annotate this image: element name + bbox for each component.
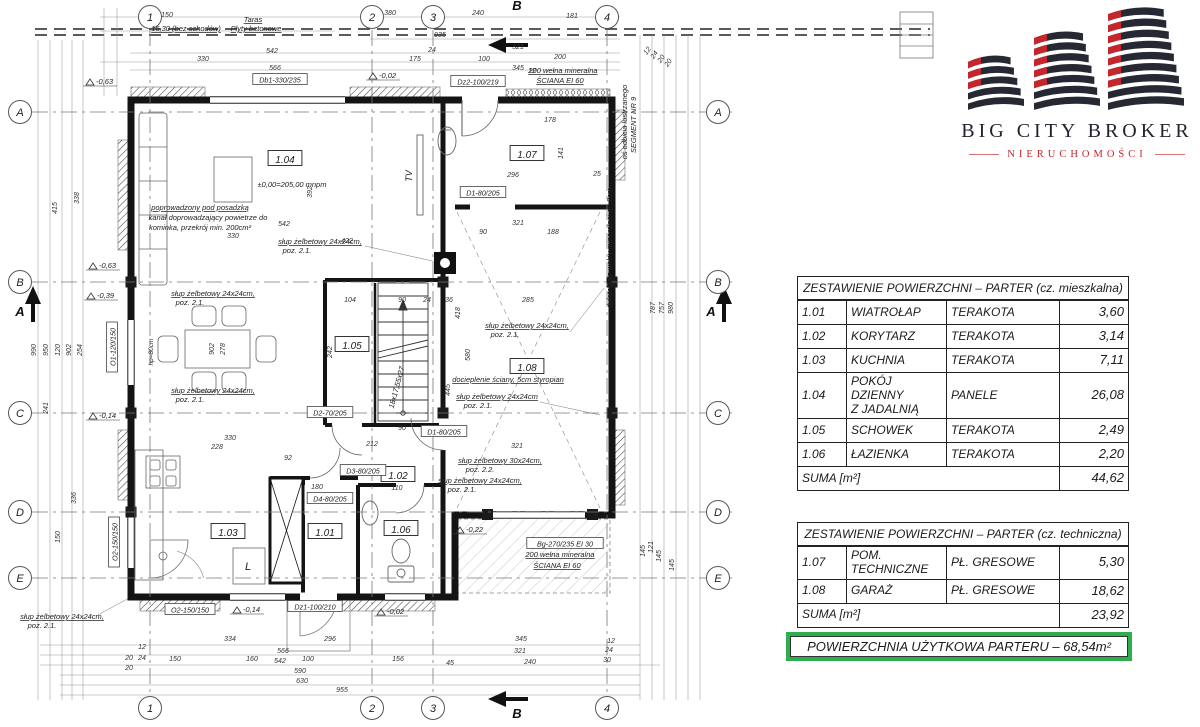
dimension-label: 100 — [478, 56, 490, 63]
room-finish: TERAKOTA — [946, 442, 1059, 466]
annotation: 200 wełna mineralna — [527, 66, 597, 75]
opening-label: D2-70/205 — [307, 407, 353, 418]
elevation-value: -0,14 — [243, 605, 260, 614]
dimension-label: 90 — [479, 229, 487, 236]
dimension-label: 175 — [409, 56, 421, 63]
dimension-label: 45 — [446, 660, 454, 667]
dimension-label: 25 — [592, 171, 601, 178]
annotation: poz. 2.1. — [490, 330, 520, 339]
grid-bubble-label: D — [714, 507, 722, 519]
section-arrow-b-bottom — [488, 691, 528, 707]
dimension-label: 254 — [77, 344, 84, 357]
opening-label: Db1-330/235 — [253, 74, 307, 85]
room-number: 1.01 — [315, 528, 334, 539]
dimension-label: 980 — [668, 302, 675, 314]
room-code: 1.04 — [798, 372, 846, 418]
annotation: słup żelbetowy 24x24cm, — [485, 321, 569, 330]
dimension-label: 24 — [427, 47, 436, 54]
annotation: Taras — [244, 15, 263, 24]
sum-label: SUMA [m²] — [798, 466, 1059, 490]
elevation-value: -0,63 — [99, 261, 117, 270]
opening-code: D2-70/205 — [313, 409, 348, 418]
dimension-label: 902 — [66, 344, 73, 356]
elevation-value: -0,39 — [97, 291, 115, 300]
dimension-label: 20 — [124, 655, 133, 662]
elevation-triangle-icon — [89, 263, 97, 269]
annotation: 15,30 (bez schodów) — [151, 24, 221, 33]
sum-value: 23,92 — [1059, 603, 1128, 627]
grid-bubble-label: 1 — [147, 703, 153, 715]
room-number: 1.05 — [342, 341, 362, 352]
table-title: ZESTAWIENIE POWIERZCHNI – PARTER (cz. mi… — [797, 276, 1129, 300]
annotation: L — [245, 561, 251, 573]
dimension-label: 178 — [544, 117, 556, 124]
grid-bubble-label: C — [16, 408, 24, 420]
annotation: słup żelbetowy 24x24cm, — [438, 476, 522, 485]
room-area: 3,14 — [1059, 324, 1128, 348]
room-area: 18,62 — [1059, 579, 1128, 603]
annotation: słup żelbetowy 24x24cm, — [278, 237, 362, 246]
room-name: WIATROŁAP — [846, 300, 946, 324]
dimension-label: 345 — [515, 636, 527, 643]
dimension-label: 285 — [521, 297, 534, 304]
dimension-label: 100 — [302, 656, 314, 663]
section-label: B — [512, 0, 521, 13]
dimension-label: 566 — [277, 648, 289, 655]
annotation: TV — [404, 169, 414, 181]
room-number: 1.03 — [218, 528, 238, 539]
fireplace — [434, 252, 456, 274]
room-area: 2,20 — [1059, 442, 1128, 466]
annotation: ŚCIANA EI 60 — [533, 561, 581, 570]
opening-label: D3-80/205 — [340, 465, 386, 476]
room-label: 1.06 — [384, 521, 418, 537]
dimension-label: 955 — [336, 687, 348, 694]
dimension-label: 787 — [650, 301, 657, 314]
dimension-label: 228 — [210, 444, 223, 451]
area-table-technical: ZESTAWIENIE POWIERZCHNI – PARTER (cz. te… — [797, 522, 1129, 628]
dimension-label: 330 — [227, 233, 239, 240]
dimension-label: 321 — [511, 443, 523, 450]
area-table-residential: ZESTAWIENIE POWIERZCHNI – PARTER (cz. mi… — [797, 276, 1129, 491]
dimension-label: 120 — [55, 344, 62, 356]
dimension-label: 104 — [344, 297, 356, 304]
room-label: 1.05 — [335, 337, 369, 353]
opening-label: D4-80/205 — [307, 493, 353, 504]
dimension-label: 330 — [197, 56, 209, 63]
room-number: 1.08 — [517, 363, 537, 374]
opening-code: Db1-330/235 — [259, 76, 302, 85]
annotation: poz. 2.1. — [175, 395, 205, 404]
room-code: 1.02 — [798, 324, 846, 348]
opening-label: Bg-270/235 EI 30 — [527, 538, 603, 549]
logo-dash-left — [969, 154, 999, 155]
grid-bubble-label: A — [15, 107, 23, 119]
room-finish: TERAKOTA — [946, 324, 1059, 348]
dimension-label: 935 — [434, 32, 446, 39]
grid-bubble-label: 1 — [147, 12, 153, 24]
room-name: GARAŻ — [846, 579, 946, 603]
elevation-value: -0,02 — [379, 71, 397, 80]
dimension-label: 121 — [648, 541, 655, 553]
annotation: SEGMENT NR 9 — [629, 96, 638, 153]
annotation: poz. 2.1. — [175, 298, 205, 307]
room-number: 1.06 — [391, 525, 411, 536]
dimension-label: 542 — [278, 221, 290, 228]
dimension-label: 296 — [323, 636, 336, 643]
dimension-label: 445 — [445, 384, 452, 396]
dimension-label: 240 — [523, 659, 536, 666]
room-number: 1.02 — [388, 471, 408, 482]
section-label: A — [14, 304, 24, 319]
elevation-triangle-icon — [86, 79, 94, 85]
room-name: KORYTARZ — [846, 324, 946, 348]
dimension-label: 580 — [465, 349, 472, 361]
grid-bubble-label: 2 — [368, 12, 375, 24]
dimension-label: 181 — [566, 13, 578, 20]
dimension-label: 200 — [553, 54, 566, 61]
room-code: 1.03 — [798, 348, 846, 372]
dimension-label: 160 — [246, 656, 258, 663]
annotation: docieplenie ściany, 5cm styropian — [452, 375, 564, 384]
opening-label: O2-150/150 — [165, 604, 215, 615]
sum-label: SUMA [m²] — [798, 603, 1059, 627]
grid-bubble-label: A — [713, 107, 721, 119]
logo-title: BIG CITY BROKER — [952, 120, 1200, 143]
dimension-label: 418 — [455, 307, 462, 319]
annotation: oś odbicia lustrzanego — [620, 85, 629, 160]
logo-building-stripe — [968, 97, 1024, 110]
room-label: 1.08 — [510, 359, 544, 375]
room-name: POKÓJ DZIENNY Z JADALNIĄ — [846, 372, 946, 418]
grid-bubble-label: 4 — [604, 12, 610, 24]
room-finish: TERAKOTA — [946, 348, 1059, 372]
annotation: hp=80cm — [148, 338, 155, 366]
grid-bubble-label: E — [16, 573, 24, 585]
dimension-label: 156 — [392, 656, 404, 663]
opening-code: O1-120/150 — [109, 328, 118, 366]
room-label: 1.01 — [308, 524, 342, 540]
elevation-triangle-icon — [369, 73, 377, 79]
room-area: 3,60 — [1059, 300, 1128, 324]
section-label: A — [705, 304, 715, 319]
elevation-triangle-icon — [87, 293, 95, 299]
room-code: 1.08 — [798, 579, 846, 603]
sum-value: 44,62 — [1059, 466, 1128, 490]
dimension-label: 141 — [558, 147, 565, 159]
opening-label: O2-150/150 — [109, 517, 120, 567]
annotation: poz. 2.1. — [27, 621, 57, 630]
room-label: 1.07 — [510, 146, 544, 162]
dimension-label: 150 — [55, 531, 62, 543]
usable-area-total-box: POWIERZCHNIA UŻYTKOWA PARTERU – 68,54m² — [786, 632, 1132, 661]
opening-label: D1-80/205 — [421, 426, 467, 437]
opening-code: D1-80/205 — [466, 189, 501, 198]
logo-buildings-icon — [962, 6, 1192, 116]
dimension-label: 241 — [43, 402, 50, 415]
room-label: 1.04 — [268, 151, 302, 167]
dimension-label: 20 — [124, 665, 133, 672]
annotation: słup żelbetowy 24x24cm, — [171, 386, 255, 395]
real-estate-floor-plan-sheet: 11223344AABBCCDDEE BBAA15038024018193532… — [0, 0, 1200, 727]
grid-bubble-label: E — [714, 573, 722, 585]
room-area: 26,08 — [1059, 372, 1128, 418]
elevation-triangle-icon — [233, 607, 241, 613]
opening-code: D1-80/205 — [427, 428, 462, 437]
room-name: ŁAZIENKA — [846, 442, 946, 466]
room-name: SCHOWEK — [846, 418, 946, 442]
annotation: kanał doprowadzający powietrze do — [149, 213, 268, 222]
dimension-label: 30 — [603, 657, 611, 664]
room-finish: PŁ. GRESOWE — [946, 546, 1059, 579]
room-code: 1.07 — [798, 546, 846, 579]
opening-code: Bg-270/235 EI 30 — [537, 540, 593, 549]
room-name: KUCHNIA — [846, 348, 946, 372]
opening-label: Dz1-100/210 — [288, 601, 342, 612]
dimension-label: 338 — [74, 192, 81, 204]
dimension-label: 321 — [512, 220, 524, 227]
opening-code: Dz2-100/219 — [457, 78, 498, 87]
annotation: ±0,00=205,00 mnpm — [258, 180, 327, 189]
elevation-value: -0,63 — [96, 77, 114, 86]
dimension-label: 757 — [659, 301, 666, 314]
room-area: 2,49 — [1059, 418, 1128, 442]
dimension-label: 415 — [52, 202, 59, 214]
elevation-triangle-icon — [89, 413, 97, 419]
logo-building-stripe — [1108, 96, 1184, 110]
table-body: 1.07 POM. TECHNICZNE PŁ. GRESOWE 5,30 1.… — [797, 546, 1129, 628]
table-title: ZESTAWIENIE POWIERZCHNI – PARTER (cz. te… — [797, 522, 1129, 546]
tv-outline — [417, 135, 423, 215]
dimension-label: 90 — [398, 425, 406, 432]
dimension-label: 336 — [71, 492, 78, 504]
annotation: Płyty betonowe — [231, 24, 282, 33]
chimney-shaft — [270, 478, 303, 583]
room-code: 1.01 — [798, 300, 846, 324]
annotation: słup żelbetowy 30x24cm, — [458, 456, 542, 465]
dimension-label: 334 — [224, 636, 236, 643]
logo-building-stripe — [1034, 97, 1100, 110]
dimension-label: 990 — [31, 344, 38, 356]
opening-code: O2-150/150 — [171, 606, 209, 615]
opening-code: O2-150/150 — [111, 523, 120, 561]
dimension-label: 542 — [274, 658, 286, 665]
dimension-label: 212 — [365, 441, 378, 448]
elevation-value: -0,22 — [466, 525, 484, 534]
dimension-label: 902 — [209, 343, 216, 355]
neighbor-segment-outline — [900, 12, 933, 58]
dimension-label: 240 — [471, 10, 484, 17]
dimension-label: 24 — [137, 655, 146, 662]
annotation: dylatacja z wełny mineralnej gr. 2cm — [605, 188, 614, 308]
annotation: ŚCIANA EI 60 — [536, 76, 584, 85]
grid-bubble-label: 4 — [604, 703, 610, 715]
dimension-label: 380 — [384, 10, 396, 17]
dimension-label: 145 — [656, 550, 663, 562]
grid-bubble-label: 3 — [430, 703, 437, 715]
section-label: B — [512, 706, 521, 721]
dimension-label: 330 — [224, 435, 236, 442]
dimension-label: 12 — [138, 644, 146, 651]
opening-code: Dz1-100/210 — [294, 603, 335, 612]
grid-bubble-label: C — [714, 408, 722, 420]
room-area: 7,11 — [1059, 348, 1128, 372]
dimension-label: 242 — [327, 346, 334, 359]
dimension-label: 90 — [398, 297, 406, 304]
dimension-label: 566 — [269, 65, 281, 72]
table-body: 1.01 WIATROŁAP TERAKOTA 3,60 1.02 KORYTA… — [797, 300, 1129, 491]
room-finish: PŁ. GRESOWE — [946, 579, 1059, 603]
dimension-label: 296 — [506, 172, 519, 179]
annotation: słup żelbetowy 24x24cm — [456, 392, 538, 401]
dimension-label: 345 — [512, 65, 524, 72]
room-area: 5,30 — [1059, 546, 1128, 579]
furniture-bathroom — [362, 501, 414, 582]
grid-bubble-label: 2 — [368, 703, 375, 715]
dimension-label: 321 — [512, 44, 524, 51]
room-name: POM. TECHNICZNE — [846, 546, 946, 579]
dimension-label: 150 — [169, 656, 181, 663]
grid-bubble-label: B — [16, 277, 23, 289]
annotation: 200 wełna mineralna — [524, 550, 594, 559]
room-label: 1.03 — [211, 524, 245, 540]
annotation: poz. 2.1. — [463, 401, 493, 410]
annotation: poz. 2.1. — [282, 246, 312, 255]
room-code: 1.06 — [798, 442, 846, 466]
logo-subtitle: NIERUCHOMOŚCI — [1007, 149, 1147, 160]
grid-bubble-label: B — [714, 277, 721, 289]
dimension-label: 110 — [391, 485, 402, 492]
dimension-label: 188 — [547, 229, 559, 236]
dimension-label: 180 — [311, 484, 323, 491]
room-finish: PANELE — [946, 372, 1059, 418]
dimension-label: 150 — [161, 12, 173, 19]
dimension-label: 321 — [514, 648, 526, 655]
annotation: poz. 2.2. — [465, 465, 495, 474]
opening-code: D4-80/205 — [313, 495, 348, 504]
furniture-dining-set — [158, 306, 276, 392]
room-number: 1.04 — [275, 155, 295, 166]
dimension-label: 145 — [640, 545, 647, 557]
room-number: 1.07 — [517, 150, 537, 161]
big-city-broker-logo: BIG CITY BROKER NIERUCHOMOŚCI — [952, 6, 1200, 160]
annotation: poprowadzony pod posadzką — [150, 203, 249, 212]
opening-label: Dz2-100/219 — [451, 76, 505, 87]
room-finish: TERAKOTA — [946, 300, 1059, 324]
annotation: słup żelbetowy 24x24cm, — [20, 612, 104, 621]
opening-code: D3-80/205 — [346, 467, 381, 476]
annotation: słup żelbetowy 24x24cm, — [171, 289, 255, 298]
dimension-label: 950 — [43, 344, 50, 356]
dimension-label: 542 — [266, 48, 278, 55]
elevation-value: -0,14 — [99, 411, 116, 420]
dimension-label: 145 — [669, 559, 676, 571]
dimension-label: 590 — [294, 668, 306, 675]
opening-label: D1-80/205 — [460, 187, 506, 198]
elevation-value: -0,02 — [387, 607, 405, 616]
opening-label: O1-120/150 — [107, 322, 118, 372]
dimension-label: 12 — [607, 638, 615, 645]
dimension-label: 630 — [296, 678, 308, 685]
room-finish: TERAKOTA — [946, 418, 1059, 442]
room-code: 1.05 — [798, 418, 846, 442]
dimension-label: 24 — [604, 647, 613, 654]
logo-dash-right — [1155, 154, 1185, 155]
dimension-label: 92 — [284, 455, 292, 462]
annotation: poz. 2.1. — [447, 485, 477, 494]
grid-bubble-label: 3 — [430, 12, 437, 24]
dimension-label: 278 — [220, 343, 227, 356]
grid-bubble-label: D — [16, 507, 24, 519]
logo-subtitle-row: NIERUCHOMOŚCI — [952, 149, 1200, 160]
furniture-sofa — [139, 113, 252, 285]
annotation: kominka, przekrój min. 200cm² — [149, 223, 252, 232]
dimension-label: 24 — [422, 297, 431, 304]
dimension-label: 36 — [445, 297, 453, 304]
usable-area-total-label: POWIERZCHNIA UŻYTKOWA PARTERU – 68,54m² — [790, 636, 1128, 657]
